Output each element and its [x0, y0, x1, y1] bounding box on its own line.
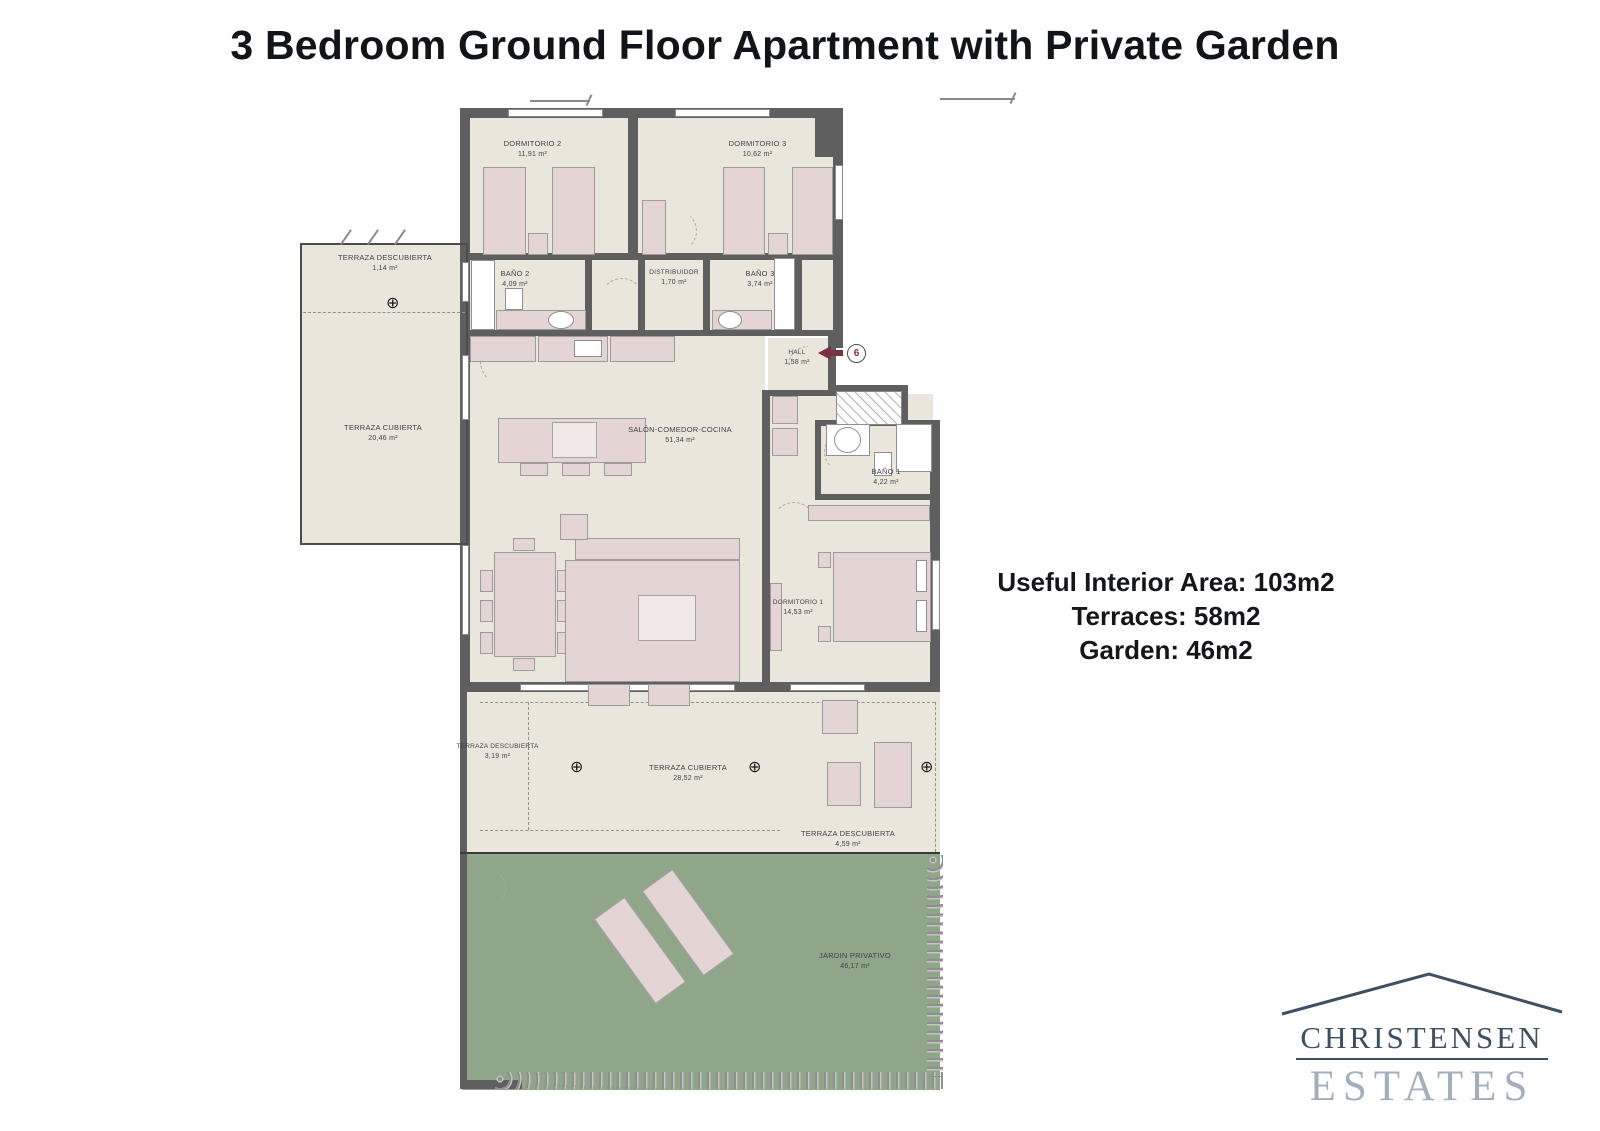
- bed: [723, 167, 765, 255]
- room-label-terraza-descubierta-bl: TERRAZA DESCUBIERTA3,19 m²: [455, 742, 540, 763]
- room-label-salon: SALÓN-COMEDOR-COCINA51,34 m²: [610, 424, 750, 446]
- stool: [562, 463, 590, 476]
- kitchen-counter: [470, 336, 536, 362]
- wall-segment: [703, 253, 710, 333]
- summary-interior-area: Useful Interior Area: 103m2: [992, 566, 1340, 600]
- nightstand: [528, 233, 548, 255]
- nightstand: [818, 626, 831, 642]
- page: 3 Bedroom Ground Floor Apartment with Pr…: [0, 0, 1600, 1131]
- hedge-bottom: [495, 1072, 943, 1089]
- wall-segment: [820, 494, 940, 500]
- room-label-terraza-cubierta-left: TERRAZA CUBIERTA20,46 m²: [323, 422, 443, 444]
- drain-icon: ⊕: [920, 760, 933, 776]
- dimension-tick: [530, 100, 590, 102]
- storage-closet: [772, 428, 798, 456]
- wall-segment: [833, 108, 843, 348]
- room-label-dormitorio-1: DORMITORIO 114,53 m²: [762, 598, 834, 619]
- terrace-dashed-line: [935, 702, 936, 852]
- toilet: [505, 288, 523, 310]
- area-summary: Useful Interior Area: 103m2 Terraces: 58…: [992, 566, 1340, 667]
- room-label-dormitorio-2: DORMITORIO 211,91 m²: [475, 138, 590, 160]
- logo-type: ESTATES: [1272, 1062, 1572, 1111]
- sink: [548, 311, 574, 329]
- bed: [792, 167, 833, 255]
- summary-garden: Garden: 46m2: [992, 634, 1340, 668]
- garden-top-edge: [460, 852, 940, 854]
- coffee-table: [638, 595, 696, 641]
- terrace-dashed-line: [528, 702, 529, 830]
- kitchen-sink: [574, 340, 602, 357]
- company-logo: CHRISTENSEN ESTATES: [1272, 962, 1572, 1127]
- room-label-bano-2: BAÑO 24,09 m²: [475, 268, 555, 290]
- chair: [480, 632, 493, 654]
- lounger: [827, 762, 861, 806]
- terrace-dashed-line: [480, 830, 780, 831]
- logo-divider: [1296, 1058, 1548, 1060]
- pillow: [916, 560, 927, 592]
- drain-icon: ⊕: [748, 760, 761, 776]
- chair: [513, 658, 535, 671]
- room-label-bano-1: BAÑO 14,22 m²: [850, 466, 922, 488]
- wall-segment: [815, 420, 821, 500]
- dining-table: [494, 552, 556, 657]
- wall-segment: [795, 253, 802, 333]
- dimension-tick: [1010, 92, 1016, 104]
- room-label-distribuidor: DISTRIBUIDOR1,70 m²: [640, 268, 708, 289]
- chair: [480, 600, 493, 622]
- terrace-outline: [300, 243, 468, 545]
- room-label-terraza-descubierta-br: TERRAZA DESCUBIERTA4,59 m²: [798, 828, 898, 850]
- door-arc: [600, 278, 644, 322]
- ottoman: [588, 684, 630, 706]
- wall-segment: [628, 108, 638, 258]
- wardrobe: [808, 505, 930, 521]
- sink: [718, 311, 742, 329]
- terrace-divider-dashed: [303, 312, 465, 313]
- room-label-bano-3: BAÑO 33,74 m²: [722, 268, 798, 290]
- wall-segment: [762, 390, 770, 690]
- terrace-dashed-line: [480, 702, 935, 703]
- wall-segment: [828, 336, 836, 396]
- window: [835, 165, 843, 220]
- bed: [552, 167, 595, 255]
- window: [462, 355, 469, 420]
- chair: [480, 570, 493, 592]
- chair: [513, 538, 535, 551]
- room-label-jardin: JARDIN PRIVATIVO46,17 m²: [795, 950, 915, 972]
- nightstand: [818, 552, 831, 568]
- room-label-hall: HALL1,58 m²: [777, 348, 817, 369]
- window: [675, 109, 770, 117]
- room-label-terraza-cubierta-bottom: TERRAZA CUBIERTA28,52 m²: [628, 762, 748, 784]
- dimension-tick: [586, 94, 592, 106]
- entrance-arrow-icon: [818, 346, 831, 360]
- door-arc: [466, 868, 506, 908]
- island-top: [552, 422, 597, 458]
- room-label-terraza-descubierta-top: TERRAZA DESCUBIERTA1,14 m²: [325, 252, 445, 274]
- closet: [642, 200, 666, 255]
- pillow: [916, 600, 927, 632]
- unit-number-badge: 6: [847, 344, 866, 363]
- logo-name: CHRISTENSEN: [1272, 1020, 1572, 1056]
- sofa-back: [575, 538, 740, 560]
- ottoman: [648, 684, 690, 706]
- stool: [520, 463, 548, 476]
- room-label-dormitorio-3: DORMITORIO 310,62 m²: [700, 138, 815, 160]
- entrance-arrow-icon: [831, 350, 843, 356]
- kitchen-counter: [610, 336, 675, 362]
- lounger: [874, 742, 912, 808]
- window: [932, 560, 940, 630]
- drain-icon: ⊕: [570, 760, 583, 776]
- sink: [834, 427, 861, 453]
- shower: [896, 424, 932, 472]
- bed: [483, 167, 526, 255]
- roof-icon: [1272, 962, 1572, 1022]
- nightstand: [768, 233, 788, 255]
- window: [462, 262, 469, 302]
- window: [790, 684, 865, 691]
- terrace-table: [822, 700, 858, 734]
- wall-segment: [460, 108, 470, 258]
- wall-segment: [585, 253, 592, 333]
- storage-closet: [772, 396, 798, 424]
- hedge-right: [927, 855, 943, 1077]
- entry-landing-hatch: [836, 391, 902, 425]
- summary-terraces: Terraces: 58m2: [992, 600, 1340, 634]
- window: [462, 545, 469, 635]
- side-table: [560, 514, 588, 540]
- dimension-tick: [940, 98, 1015, 100]
- window: [508, 109, 603, 117]
- stool: [604, 463, 632, 476]
- drain-icon: ⊕: [386, 296, 399, 312]
